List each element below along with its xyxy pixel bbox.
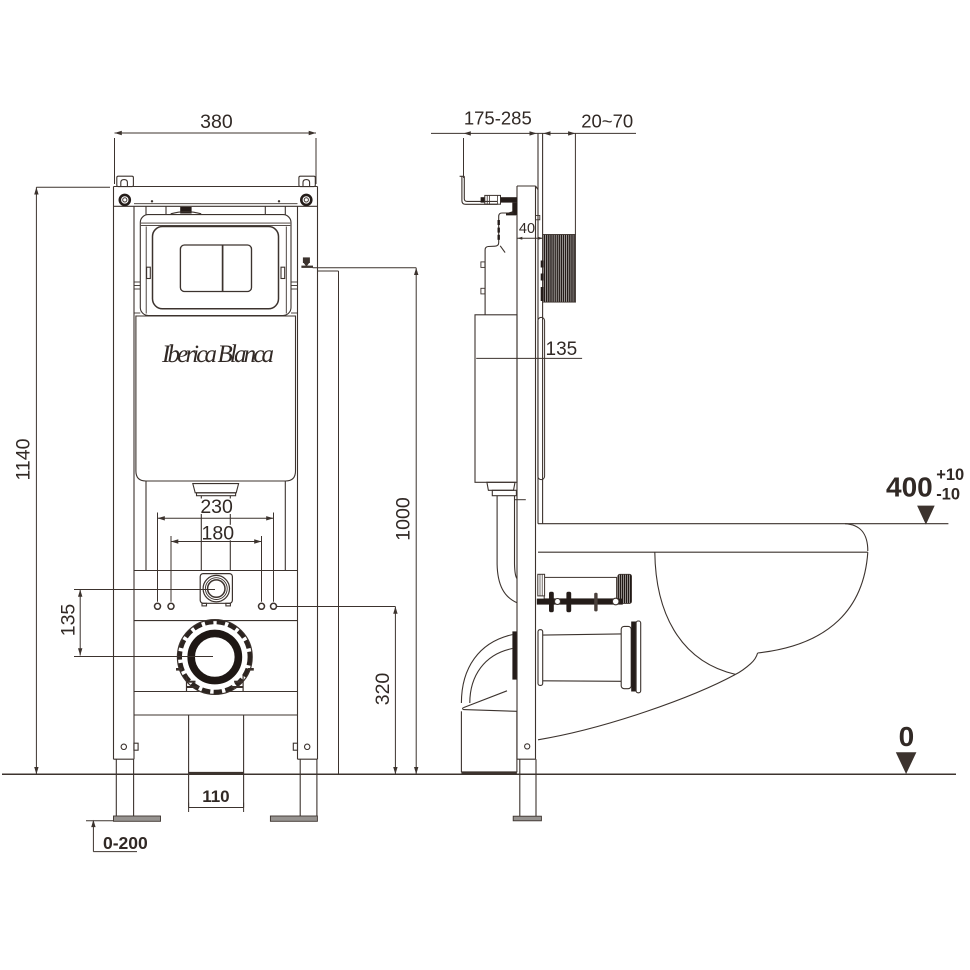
svg-text:+10: +10 bbox=[936, 466, 964, 484]
svg-text:320: 320 bbox=[372, 673, 394, 706]
svg-text:380: 380 bbox=[200, 111, 233, 133]
svg-text:Iberica Blanca: Iberica Blanca bbox=[161, 341, 274, 368]
svg-text:-10: -10 bbox=[936, 485, 960, 503]
svg-text:180: 180 bbox=[202, 522, 235, 544]
svg-text:135: 135 bbox=[58, 604, 80, 637]
svg-text:1140: 1140 bbox=[13, 438, 35, 480]
svg-text:135: 135 bbox=[546, 339, 578, 360]
svg-text:0-200: 0-200 bbox=[103, 833, 148, 853]
svg-text:400: 400 bbox=[886, 472, 933, 503]
svg-text:20~70: 20~70 bbox=[581, 110, 633, 131]
svg-text:230: 230 bbox=[200, 496, 233, 518]
svg-text:1000: 1000 bbox=[393, 497, 415, 541]
svg-text:175-285: 175-285 bbox=[464, 107, 532, 128]
svg-text:110: 110 bbox=[202, 787, 229, 806]
svg-text:40: 40 bbox=[519, 221, 535, 237]
svg-text:0: 0 bbox=[899, 721, 915, 752]
